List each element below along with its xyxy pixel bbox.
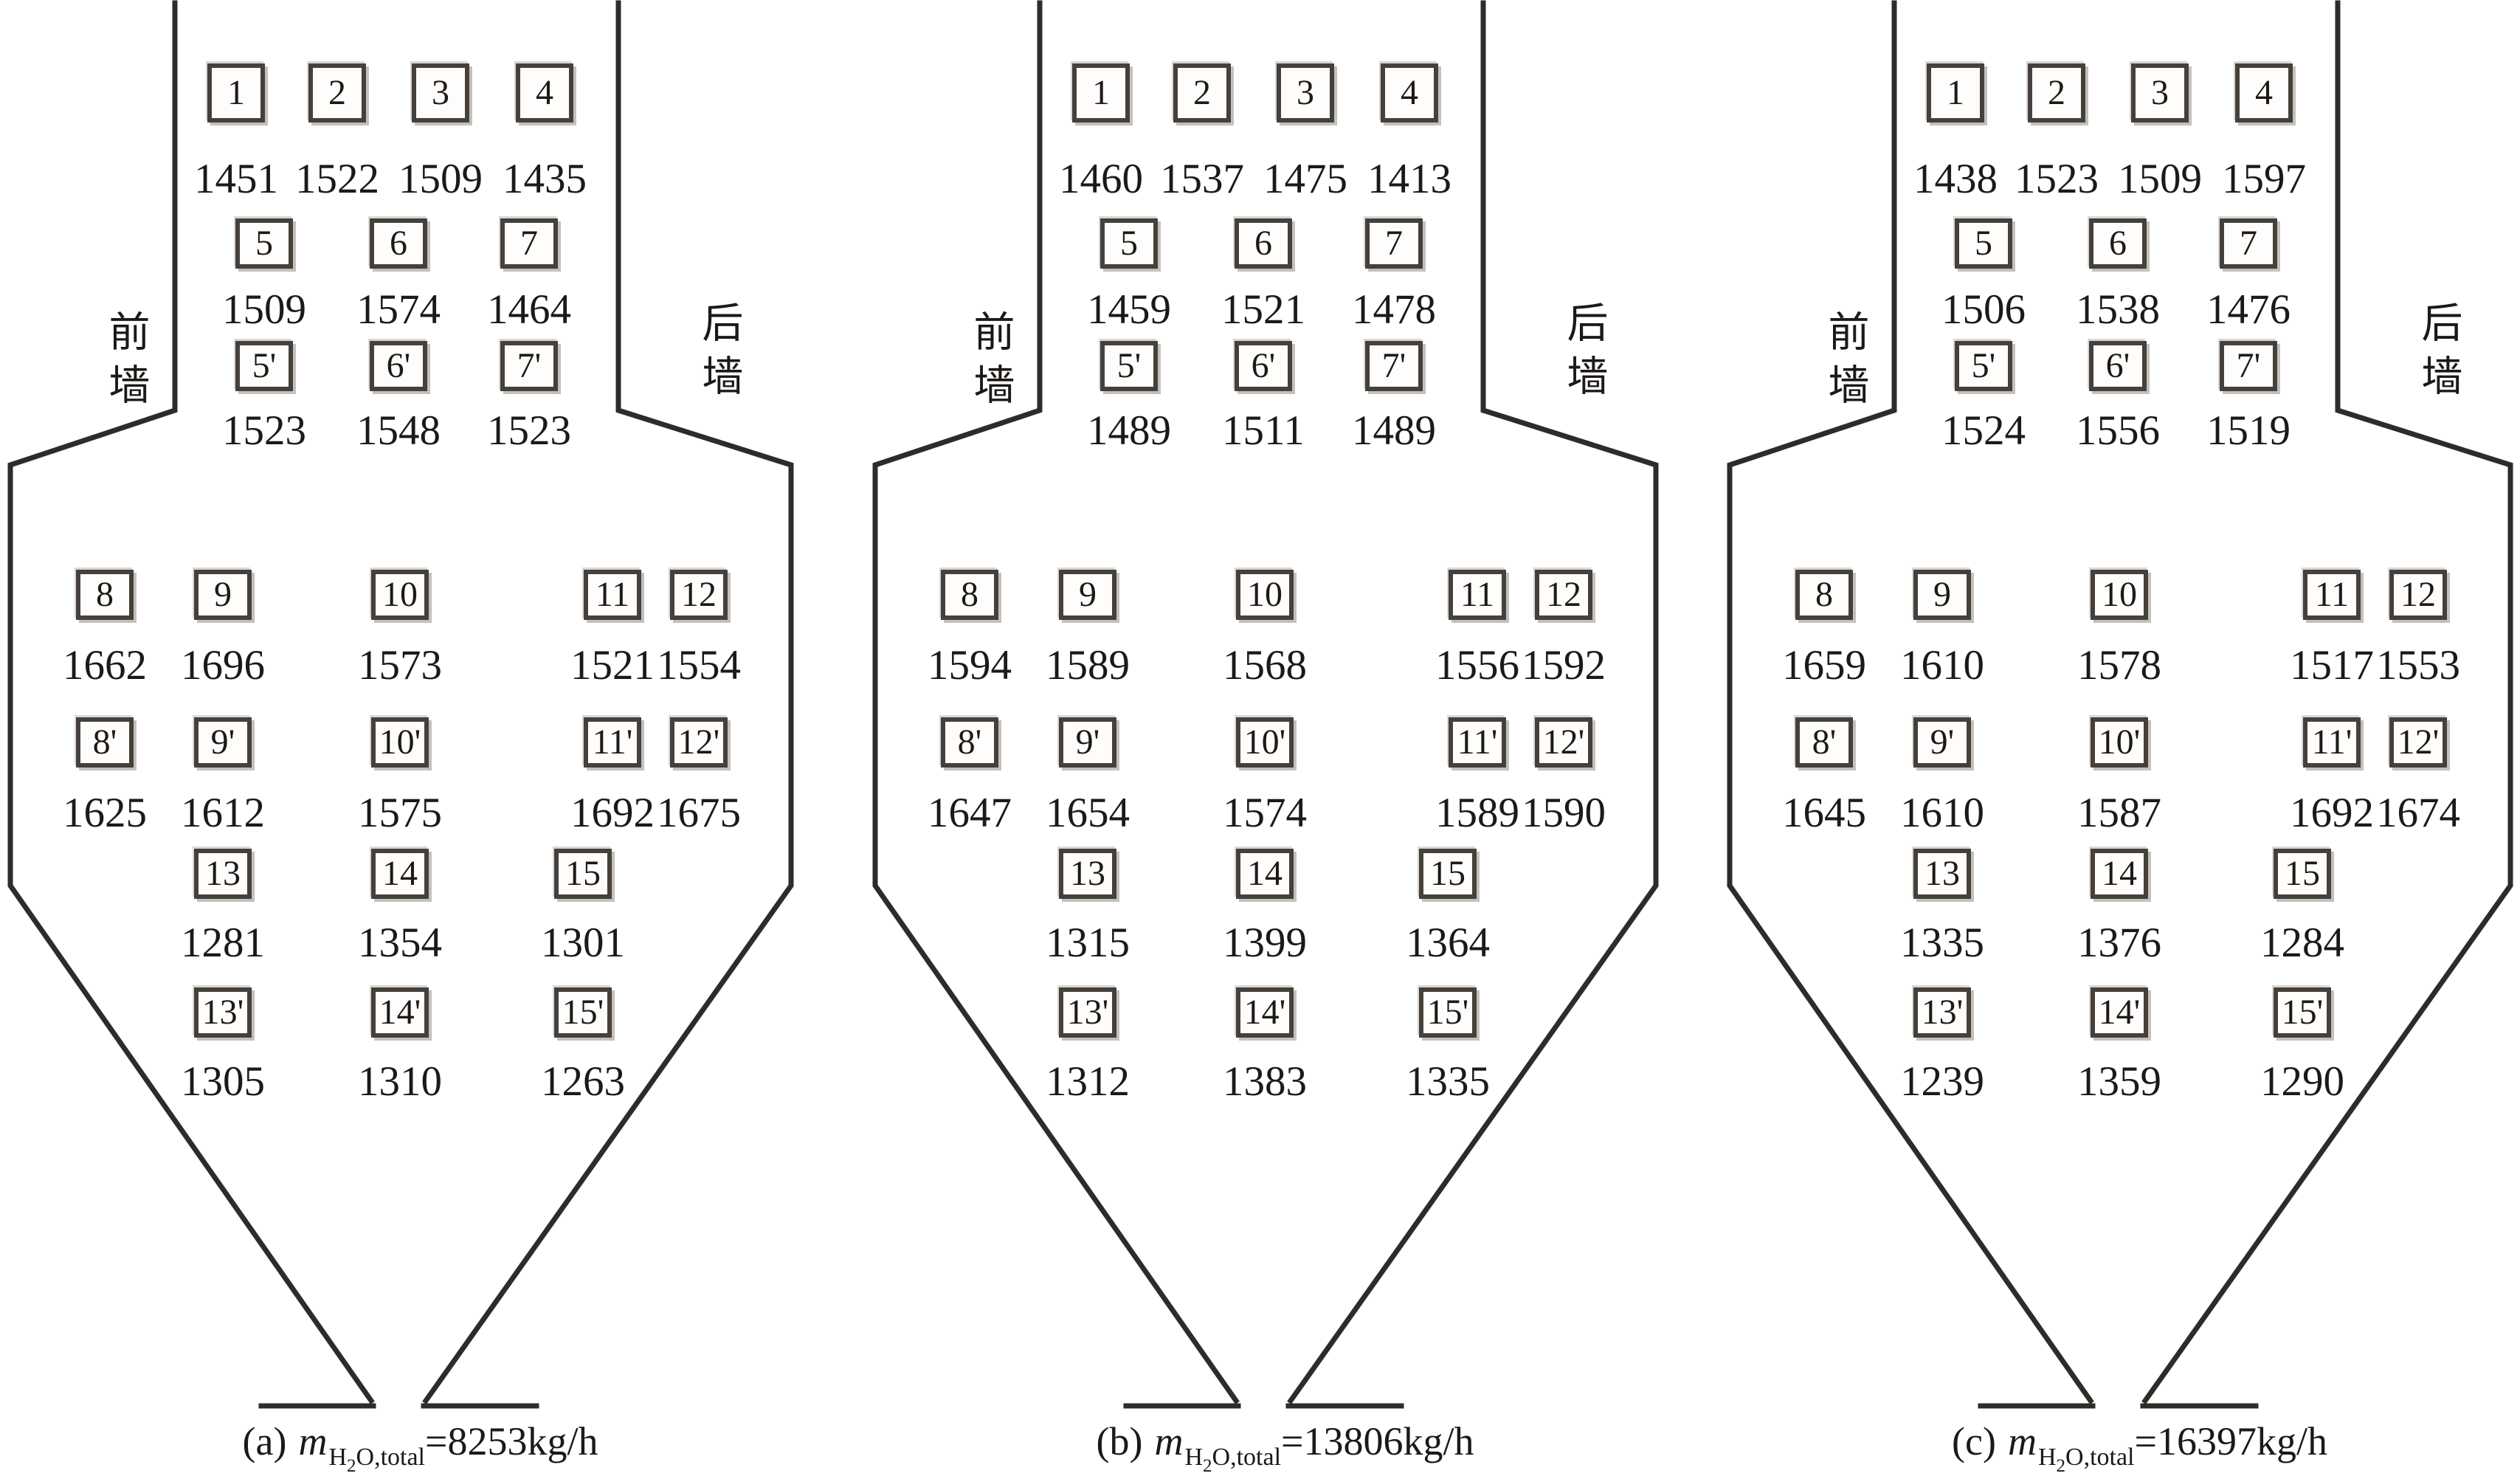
caption-index: (b) — [1097, 1419, 1143, 1463]
sensor-box: 12 — [1535, 570, 1592, 620]
sensor-value: 1435 — [456, 157, 633, 201]
sensor-box-label: 4 — [1401, 75, 1418, 111]
sensor-box-label: 10 — [1247, 577, 1283, 613]
sensor-box-label: 2 — [1193, 75, 1211, 111]
sensor-box-label: 14 — [1247, 856, 1283, 892]
sensor-value: 1478 — [1305, 288, 1482, 332]
sensor-value: 1675 — [610, 791, 787, 835]
caption-symbol: m — [1154, 1419, 1183, 1463]
sensor-box-label: 3 — [2151, 75, 2169, 111]
caption-equation: =16397kg/h — [2135, 1419, 2327, 1463]
sensor-box-label: 8' — [1812, 725, 1837, 760]
sensor-box-label: 14 — [2102, 856, 2137, 892]
caption-sub-2: 2 — [2057, 1456, 2066, 1476]
sensor-box: 3 — [412, 63, 469, 123]
sensor-box-label: 14' — [2099, 995, 2141, 1030]
sensor-box-label: 12' — [678, 725, 720, 760]
sensor-box: 8 — [76, 570, 134, 620]
sensor-box-label: 15 — [1430, 856, 1466, 892]
sensor-box-label: 11' — [1457, 725, 1498, 760]
sensor-box: 12 — [670, 570, 728, 620]
sensor-value: 1523 — [441, 409, 618, 453]
sensor-value: 1597 — [2175, 157, 2352, 201]
sensor-box-label: 8' — [958, 725, 982, 760]
sensor-box-label: 7' — [517, 348, 542, 384]
sensor-box: 5' — [235, 341, 293, 391]
sensor-box-label: 10' — [1244, 725, 1286, 760]
sensor-value: 1553 — [2330, 644, 2507, 688]
sensor-box-label: 4 — [2255, 75, 2273, 111]
sensor-box-label: 12 — [681, 577, 717, 613]
sensor-box: 6' — [1235, 341, 1292, 391]
sensor-box-label: 1 — [227, 75, 245, 111]
caption-sub-rest: O,total — [2065, 1444, 2134, 1471]
sensor-value: 1575 — [311, 791, 489, 835]
sensor-value: 1610 — [1854, 644, 2031, 688]
sensor-value: 1654 — [999, 791, 1176, 835]
sensor-box-label: 10 — [2102, 577, 2137, 613]
panel-caption: (b)mH2O,total=13806kg/h — [865, 1418, 1705, 1472]
rear-wall-path — [2145, 3, 2510, 1401]
caption-index: (a) — [243, 1419, 287, 1463]
sensor-box-label: 7' — [1382, 348, 1406, 384]
sensor-box-label: 6 — [2109, 226, 2127, 261]
sensor-box: 1 — [207, 63, 265, 123]
sensor-value: 1696 — [134, 644, 311, 688]
sensor-box: 14 — [1236, 849, 1294, 899]
front-wall-label: 前墙 — [970, 310, 1011, 416]
furnace-temperature-figure: 前墙 后墙 1145121522315094143551509615747146… — [0, 0, 2520, 1468]
sensor-box: 1 — [1072, 63, 1130, 123]
sensor-value: 1399 — [1176, 921, 1353, 965]
sensor-value: 1674 — [2330, 791, 2507, 835]
sensor-box: 10' — [2091, 717, 2148, 768]
sensor-box: 8' — [941, 717, 998, 768]
sensor-box-label: 6' — [2106, 348, 2130, 384]
caption-sub-rest: O,total — [1212, 1444, 1281, 1471]
sensor-box-label: 7' — [2237, 348, 2261, 384]
sensor-box: 8' — [76, 717, 134, 768]
rear-wall-path — [1291, 3, 1656, 1401]
sensor-box-label: 6 — [390, 226, 407, 261]
sensor-box: 14 — [371, 849, 429, 899]
sensor-box-label: 10' — [379, 725, 421, 760]
sensor-box-label: 13' — [202, 995, 244, 1030]
sensor-box-label: 15 — [2285, 856, 2320, 892]
sensor-box: 10' — [1236, 717, 1294, 768]
sensor-value: 1489 — [1305, 409, 1482, 453]
sensor-box: 6 — [2089, 218, 2147, 269]
caption-sub-2: 2 — [1203, 1456, 1212, 1476]
sensor-box: 11' — [1449, 717, 1506, 768]
sensor-box: 12' — [2389, 717, 2447, 768]
sensor-box-label: 11' — [2312, 725, 2352, 760]
panel-c: 前墙 后墙 1143821523315094159751506615387147… — [1719, 0, 2520, 1468]
caption-subscript: H2O,total — [328, 1444, 425, 1471]
sensor-box-label: 6 — [1254, 226, 1272, 261]
sensor-box-label: 1 — [1947, 75, 1964, 111]
sensor-box: 5 — [1955, 218, 2012, 269]
sensor-value: 1383 — [1176, 1060, 1353, 1104]
sensor-box: 14 — [2091, 849, 2148, 899]
sensor-box-label: 9' — [1930, 725, 1955, 760]
sensor-box-label: 9 — [1079, 577, 1097, 613]
sensor-box: 4 — [1381, 63, 1438, 123]
sensor-box-label: 13 — [1070, 856, 1105, 892]
sensor-box-label: 15' — [1427, 995, 1469, 1030]
sensor-box-label: 14' — [1244, 995, 1286, 1030]
sensor-box-label: 13' — [1067, 995, 1109, 1030]
sensor-box-label: 9 — [1933, 577, 1951, 613]
sensor-value: 1315 — [999, 921, 1176, 965]
sensor-box: 15 — [554, 849, 612, 899]
sensor-box-label: 14 — [382, 856, 418, 892]
sensor-box-label: 13' — [1922, 995, 1964, 1030]
sensor-value: 1589 — [999, 644, 1176, 688]
sensor-box: 5 — [1100, 218, 1158, 269]
caption-equation: =8253kg/h — [425, 1419, 598, 1463]
sensor-box-label: 15' — [562, 995, 604, 1030]
front-wall-path — [10, 3, 371, 1401]
sensor-box: 10' — [371, 717, 429, 768]
sensor-box: 8 — [941, 570, 998, 620]
sensor-box: 9 — [194, 570, 252, 620]
front-wall-path — [1730, 3, 2091, 1401]
sensor-box: 9 — [1059, 570, 1116, 620]
caption-symbol: m — [2008, 1419, 2037, 1463]
sensor-box: 10 — [2091, 570, 2148, 620]
sensor-box-label: 14' — [379, 995, 421, 1030]
sensor-box-label: 2 — [328, 75, 346, 111]
sensor-value: 1568 — [1176, 644, 1353, 688]
sensor-box-label: 6' — [387, 348, 411, 384]
sensor-box: 11 — [1449, 570, 1506, 620]
sensor-box: 14' — [371, 987, 429, 1038]
sensor-box: 3 — [2131, 63, 2189, 123]
sensor-value: 1305 — [134, 1060, 311, 1104]
panel-caption: (c)mH2O,total=16397kg/h — [1719, 1418, 2520, 1472]
sensor-box: 14' — [2091, 987, 2148, 1038]
sensor-box: 6 — [370, 218, 427, 269]
sensor-box-label: 5 — [255, 226, 273, 261]
sensor-box-label: 8 — [961, 577, 978, 613]
sensor-box-label: 8 — [1815, 577, 1833, 613]
caption-symbol: m — [298, 1419, 327, 1463]
sensor-box: 13' — [1059, 987, 1116, 1038]
sensor-box-label: 8' — [93, 725, 117, 760]
rear-wall-label: 后墙 — [2417, 301, 2459, 407]
sensor-value: 1364 — [1359, 921, 1536, 965]
sensor-box-label: 9 — [214, 577, 232, 613]
sensor-box: 13 — [1913, 849, 1971, 899]
sensor-box: 7' — [2220, 341, 2277, 391]
sensor-box-label: 15' — [2282, 995, 2324, 1030]
sensor-box-label: 3 — [1297, 75, 1314, 111]
sensor-value: 1354 — [311, 921, 489, 965]
sensor-box-label: 5 — [1120, 226, 1138, 261]
panel-b: 前墙 后墙 1146021537314754141351459615217147… — [865, 0, 1705, 1468]
sensor-box-label: 5' — [1972, 348, 1996, 384]
sensor-box-label: 15 — [565, 856, 601, 892]
panel-a: 前墙 后墙 1145121522315094143551509615747146… — [0, 0, 840, 1468]
sensor-box-label: 11 — [596, 577, 629, 613]
sensor-value: 1590 — [1475, 791, 1652, 835]
sensor-value: 1519 — [2160, 409, 2337, 453]
sensor-box: 2 — [2028, 63, 2085, 123]
sensor-box-label: 12' — [2398, 725, 2440, 760]
sensor-box: 11 — [584, 570, 641, 620]
sensor-value: 1592 — [1475, 644, 1652, 688]
sensor-box: 11' — [2303, 717, 2361, 768]
sensor-box-label: 12 — [1546, 577, 1581, 613]
sensor-box-label: 7 — [520, 226, 538, 261]
sensor-box-label: 5' — [1117, 348, 1142, 384]
front-wall-label: 前墙 — [105, 310, 146, 416]
sensor-box: 3 — [1277, 63, 1334, 123]
sensor-box-label: 7 — [1385, 226, 1403, 261]
sensor-value: 1359 — [2031, 1060, 2208, 1104]
caption-sub-rest: O,total — [356, 1444, 425, 1471]
sensor-box: 8 — [1795, 570, 1853, 620]
sensor-box: 9' — [1059, 717, 1116, 768]
front-wall-path — [875, 3, 1236, 1401]
sensor-box: 12 — [2389, 570, 2447, 620]
sensor-box: 6 — [1235, 218, 1292, 269]
sensor-box: 7' — [1365, 341, 1423, 391]
caption-subscript: H2O,total — [1184, 1444, 1281, 1471]
sensor-box: 1 — [1927, 63, 1984, 123]
sensor-box: 15' — [1419, 987, 1477, 1038]
sensor-box-label: 4 — [536, 75, 553, 111]
sensor-box: 4 — [2235, 63, 2293, 123]
sensor-box: 5' — [1955, 341, 2012, 391]
sensor-box-label: 6' — [1252, 348, 1276, 384]
sensor-box: 4 — [516, 63, 573, 123]
sensor-box: 11' — [584, 717, 641, 768]
sensor-box: 7 — [2220, 218, 2277, 269]
sensor-value: 1281 — [134, 921, 311, 965]
sensor-value: 1290 — [2214, 1060, 2391, 1104]
sensor-box-label: 3 — [432, 75, 449, 111]
sensor-value: 1239 — [1854, 1060, 2031, 1104]
sensor-box-label: 10' — [2099, 725, 2141, 760]
sensor-value: 1301 — [494, 921, 672, 965]
sensor-box-label: 9' — [1076, 725, 1100, 760]
sensor-box-label: 10 — [382, 577, 418, 613]
caption-equation: =13806kg/h — [1281, 1419, 1474, 1463]
caption-sub-h: H — [2038, 1444, 2057, 1471]
sensor-box: 13 — [1059, 849, 1116, 899]
sensor-box: 12' — [670, 717, 728, 768]
sensor-box: 15 — [1419, 849, 1477, 899]
sensor-value: 1335 — [1854, 921, 2031, 965]
sensor-value: 1376 — [2031, 921, 2208, 965]
sensor-box: 9' — [194, 717, 252, 768]
panel-caption: (a)mH2O,total=8253kg/h — [0, 1418, 840, 1472]
sensor-box: 10 — [1236, 570, 1294, 620]
sensor-box: 6' — [370, 341, 427, 391]
caption-sub-2: 2 — [347, 1456, 356, 1476]
rear-wall-label: 后墙 — [1563, 301, 1604, 407]
sensor-value: 1312 — [999, 1060, 1176, 1104]
sensor-value: 1464 — [441, 288, 618, 332]
sensor-box-label: 11 — [1460, 577, 1494, 613]
sensor-box-label: 5' — [252, 348, 277, 384]
sensor-value: 1554 — [610, 644, 787, 688]
sensor-value: 1335 — [1359, 1060, 1536, 1104]
sensor-value: 1610 — [1854, 791, 2031, 835]
sensor-box-label: 13 — [1924, 856, 1960, 892]
sensor-box: 7 — [1365, 218, 1423, 269]
sensor-box: 15' — [554, 987, 612, 1038]
sensor-value: 1413 — [1321, 157, 1498, 201]
sensor-box: 13' — [1913, 987, 1971, 1038]
sensor-box-label: 8 — [96, 577, 114, 613]
caption-sub-h: H — [1184, 1444, 1203, 1471]
sensor-box: 6' — [2089, 341, 2147, 391]
sensor-box-label: 12' — [1543, 725, 1585, 760]
sensor-box-label: 2 — [2048, 75, 2065, 111]
sensor-value: 1263 — [494, 1060, 672, 1104]
sensor-value: 1578 — [2031, 644, 2208, 688]
sensor-box-label: 7 — [2240, 226, 2257, 261]
sensor-box: 2 — [1173, 63, 1231, 123]
sensor-box: 7' — [500, 341, 558, 391]
front-wall-label: 前墙 — [1824, 310, 1865, 416]
sensor-box-label: 13 — [205, 856, 241, 892]
sensor-value: 1587 — [2031, 791, 2208, 835]
sensor-box-label: 11 — [2315, 577, 2349, 613]
sensor-box: 5' — [1100, 341, 1158, 391]
sensor-box: 8' — [1795, 717, 1853, 768]
sensor-value: 1476 — [2160, 288, 2337, 332]
sensor-box-label: 1 — [1092, 75, 1110, 111]
sensor-box: 15' — [2274, 987, 2331, 1038]
sensor-value: 1612 — [134, 791, 311, 835]
rear-wall-path — [426, 3, 791, 1401]
sensor-box-label: 5 — [1975, 226, 1992, 261]
sensor-value: 1310 — [311, 1060, 489, 1104]
sensor-box: 13' — [194, 987, 252, 1038]
sensor-value: 1284 — [2214, 921, 2391, 965]
sensor-box: 9 — [1913, 570, 1971, 620]
sensor-value: 1574 — [1176, 791, 1353, 835]
caption-subscript: H2O,total — [2038, 1444, 2135, 1471]
sensor-box: 9' — [1913, 717, 1971, 768]
sensor-value: 1573 — [311, 644, 489, 688]
sensor-box: 14' — [1236, 987, 1294, 1038]
sensor-box: 10 — [371, 570, 429, 620]
sensor-box: 11 — [2303, 570, 2361, 620]
sensor-box-label: 12 — [2400, 577, 2436, 613]
sensor-box: 13 — [194, 849, 252, 899]
caption-sub-h: H — [328, 1444, 347, 1471]
sensor-box-label: 9' — [211, 725, 235, 760]
sensor-box: 5 — [235, 218, 293, 269]
sensor-box: 2 — [308, 63, 366, 123]
sensor-box: 15 — [2274, 849, 2331, 899]
sensor-box-label: 11' — [593, 725, 633, 760]
caption-index: (c) — [1952, 1419, 1996, 1463]
sensor-box: 12' — [1535, 717, 1592, 768]
rear-wall-label: 后墙 — [698, 301, 739, 407]
sensor-box: 7 — [500, 218, 558, 269]
